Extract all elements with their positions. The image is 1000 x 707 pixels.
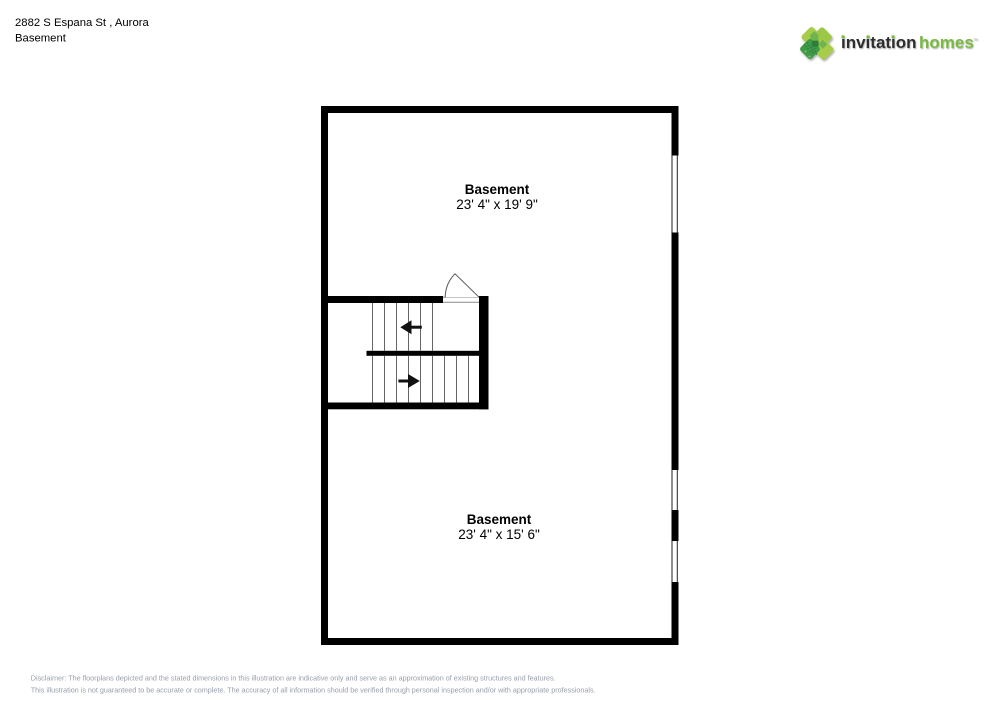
svg-text:homes: homes <box>919 33 974 52</box>
svg-text:23' 4" x 15' 6": 23' 4" x 15' 6" <box>458 527 540 542</box>
svg-text:Disclaimer: The floorplans dep: Disclaimer: The floorplans depicted and … <box>31 674 556 683</box>
svg-text:23' 4" x 19' 9": 23' 4" x 19' 9" <box>456 197 538 212</box>
svg-text:This illustration is not guara: This illustration is not guaranteed to b… <box>31 686 596 695</box>
svg-text:2882 S Espana St , Aurora: 2882 S Espana St , Aurora <box>15 17 149 29</box>
svg-text:Basement: Basement <box>15 33 67 45</box>
svg-text:TM: TM <box>974 38 979 42</box>
svg-text:Basement: Basement <box>465 182 530 197</box>
svg-text:invitation: invitation <box>841 33 917 52</box>
svg-text:Basement: Basement <box>467 512 532 527</box>
